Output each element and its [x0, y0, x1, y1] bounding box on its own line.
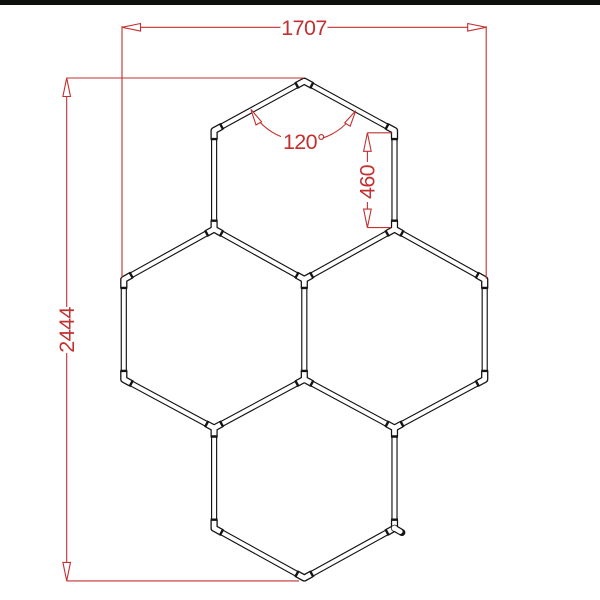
svg-text:460: 460 [355, 164, 379, 199]
svg-text:120°: 120° [283, 130, 325, 154]
svg-text:1707: 1707 [281, 16, 326, 40]
svg-text:2444: 2444 [55, 307, 79, 353]
